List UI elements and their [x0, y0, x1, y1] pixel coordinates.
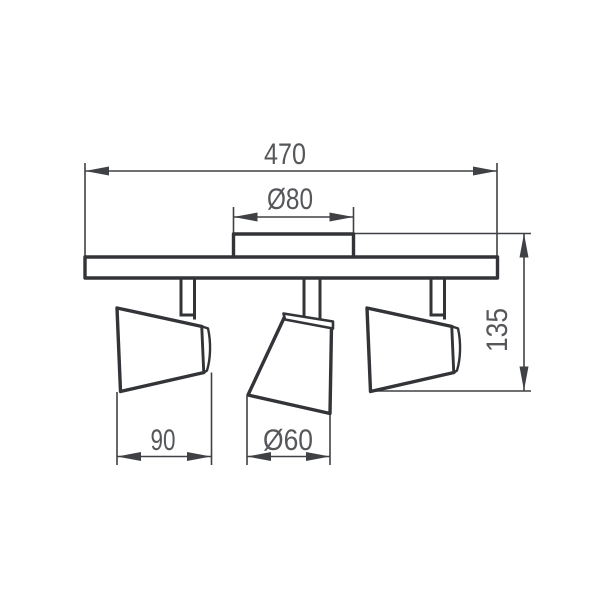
arrow-135-down-icon [520, 367, 529, 391]
arrow-470-right-icon [473, 167, 497, 176]
arm-right [431, 277, 445, 320]
spot-head-right-body [367, 308, 454, 392]
spot-head-right-rim [452, 327, 460, 373]
dim-label-overall-width: 470 [264, 138, 306, 171]
dim-label-overall-height: 135 [481, 308, 514, 352]
mounting-bar [85, 257, 498, 278]
dim-label-canopy-diameter: Ø80 [267, 183, 313, 216]
arrow-d80-right-icon [330, 213, 354, 222]
arrow-470-left-icon [85, 167, 109, 176]
spot-head-left-rim [202, 327, 210, 373]
arrow-90-right-icon [187, 452, 211, 461]
arm-center [304, 277, 320, 322]
arrow-135-up-icon [520, 234, 529, 258]
arrow-d80-left-icon [234, 213, 258, 222]
spot-head-left-body [117, 308, 204, 392]
dim-label-head-length: 90 [151, 424, 176, 457]
drawing-canvas: 470 Ø80 135 90 Ø60 [0, 0, 600, 600]
dim-label-head-diameter: Ø60 [263, 424, 313, 457]
dimension-labels: 470 Ø80 135 90 Ø60 [151, 138, 515, 457]
arrow-90-left-icon [117, 452, 141, 461]
spotlight-technical-drawing: 470 Ø80 135 90 Ø60 [0, 0, 600, 600]
spot-head-center-body [248, 317, 332, 414]
fixture-outline [85, 234, 498, 414]
arm-left [181, 277, 195, 320]
